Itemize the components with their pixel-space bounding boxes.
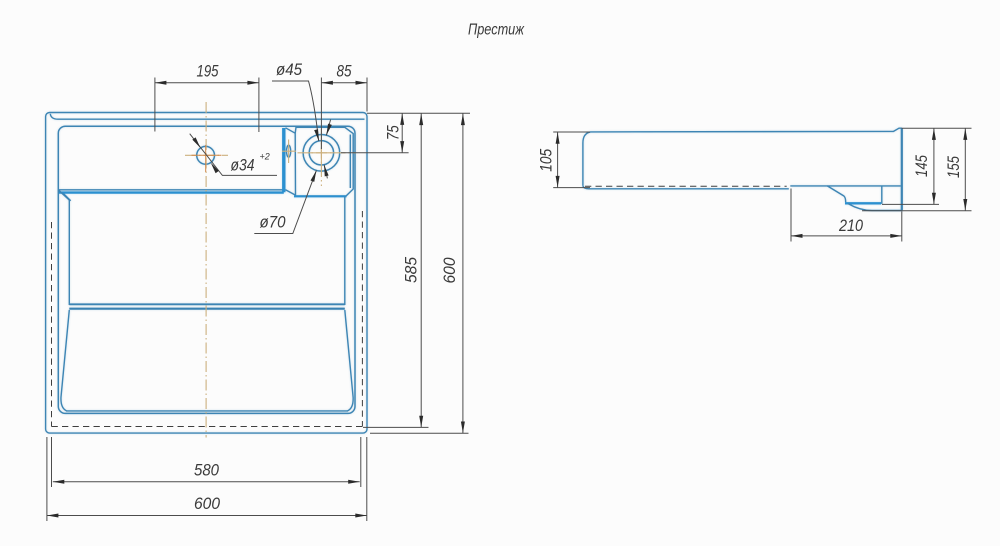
svg-text:155: 155: [944, 156, 963, 178]
svg-text:75: 75: [384, 125, 403, 140]
svg-text:195: 195: [197, 62, 219, 81]
svg-text:210: 210: [838, 216, 863, 235]
svg-text:ø70: ø70: [260, 213, 286, 232]
svg-text:ø45: ø45: [276, 60, 302, 79]
svg-text:Престиж: Престиж: [468, 22, 525, 39]
svg-text:105: 105: [537, 148, 556, 171]
svg-text:145: 145: [912, 155, 931, 177]
svg-text:85: 85: [337, 62, 352, 81]
svg-text:+2: +2: [260, 152, 270, 162]
svg-text:585: 585: [402, 257, 421, 283]
svg-text:600: 600: [440, 257, 459, 283]
svg-text:600: 600: [194, 494, 220, 513]
svg-text:ø34: ø34: [231, 156, 255, 175]
svg-text:580: 580: [194, 461, 219, 480]
